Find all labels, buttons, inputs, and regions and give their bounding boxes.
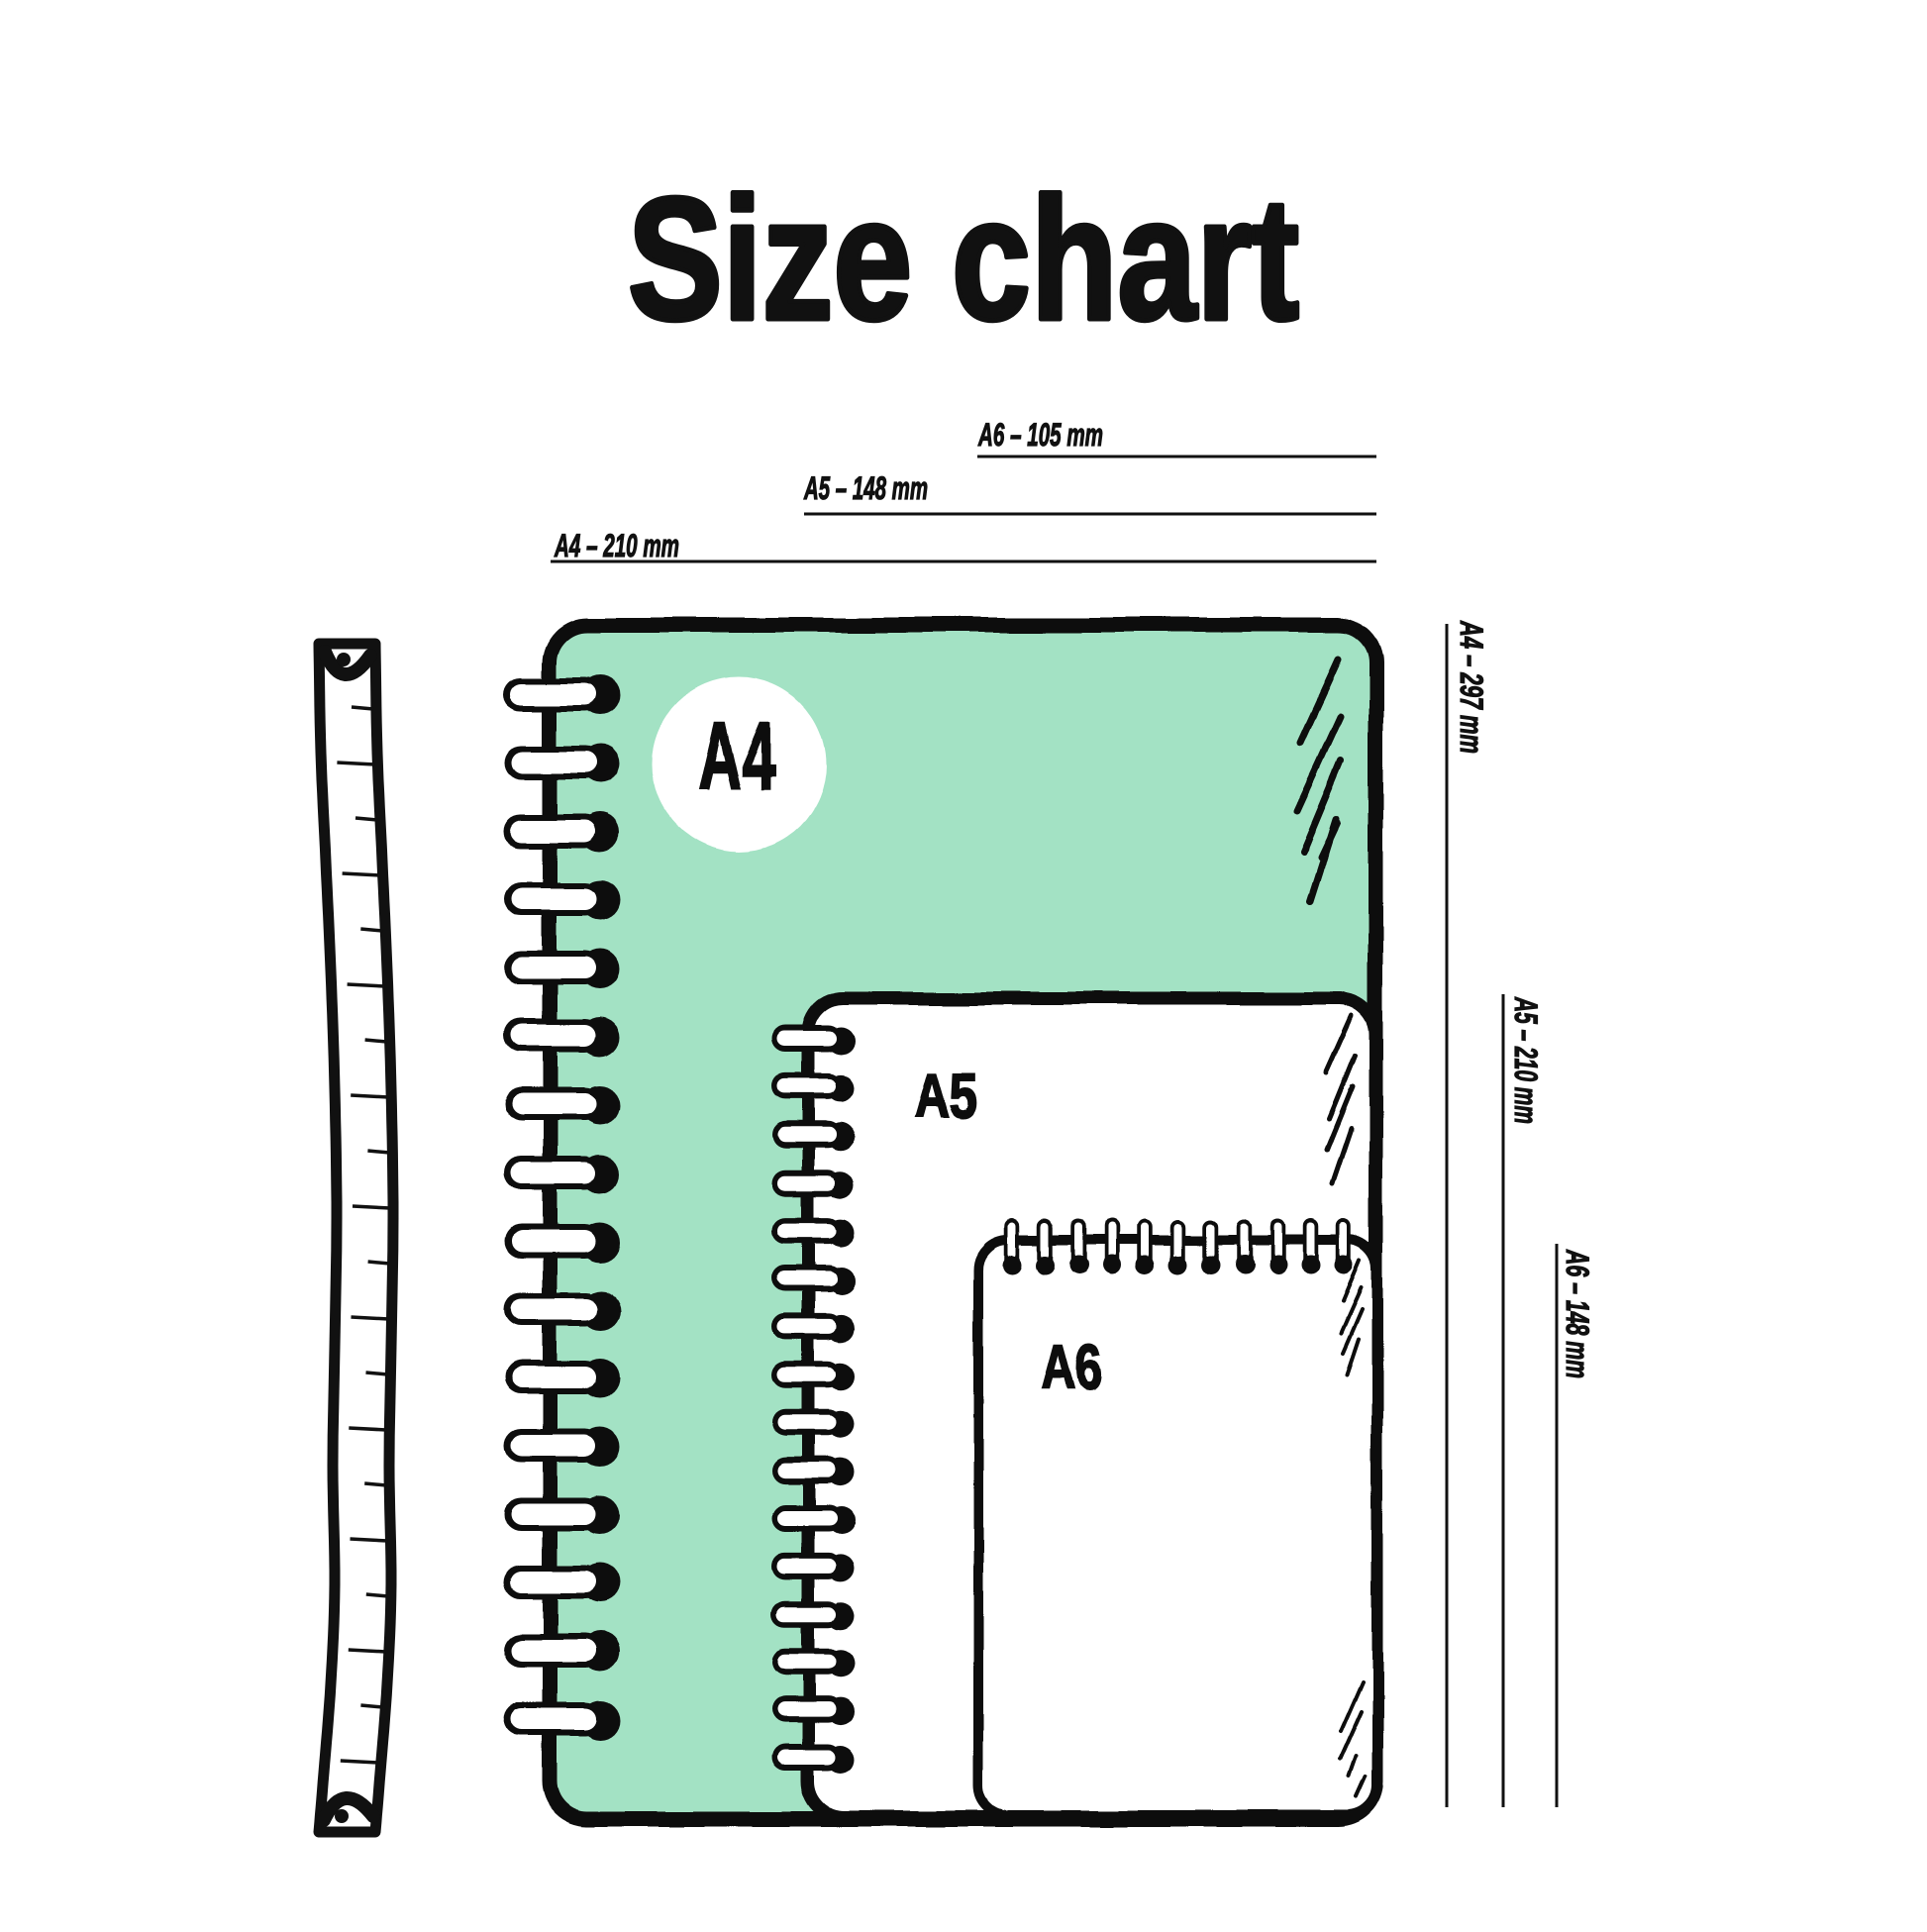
svg-text:A5: A5 [915, 1062, 978, 1131]
svg-text:A6 – 105 mm: A6 – 105 mm [977, 417, 1103, 453]
svg-text:A4 – 297 mm: A4 – 297 mm [1454, 620, 1489, 754]
svg-text:A4 – 210 mm: A4 – 210 mm [554, 528, 679, 563]
svg-text:A5 – 210 mm: A5 – 210 mm [1508, 996, 1544, 1124]
svg-text:A5 – 148 mm: A5 – 148 mm [803, 470, 928, 506]
svg-text:A6 – 148 mm: A6 – 148 mm [1560, 1249, 1595, 1378]
svg-text:A6: A6 [1042, 1331, 1102, 1402]
svg-text:A4: A4 [698, 704, 775, 810]
svg-text:Size chart: Size chart [628, 162, 1299, 356]
